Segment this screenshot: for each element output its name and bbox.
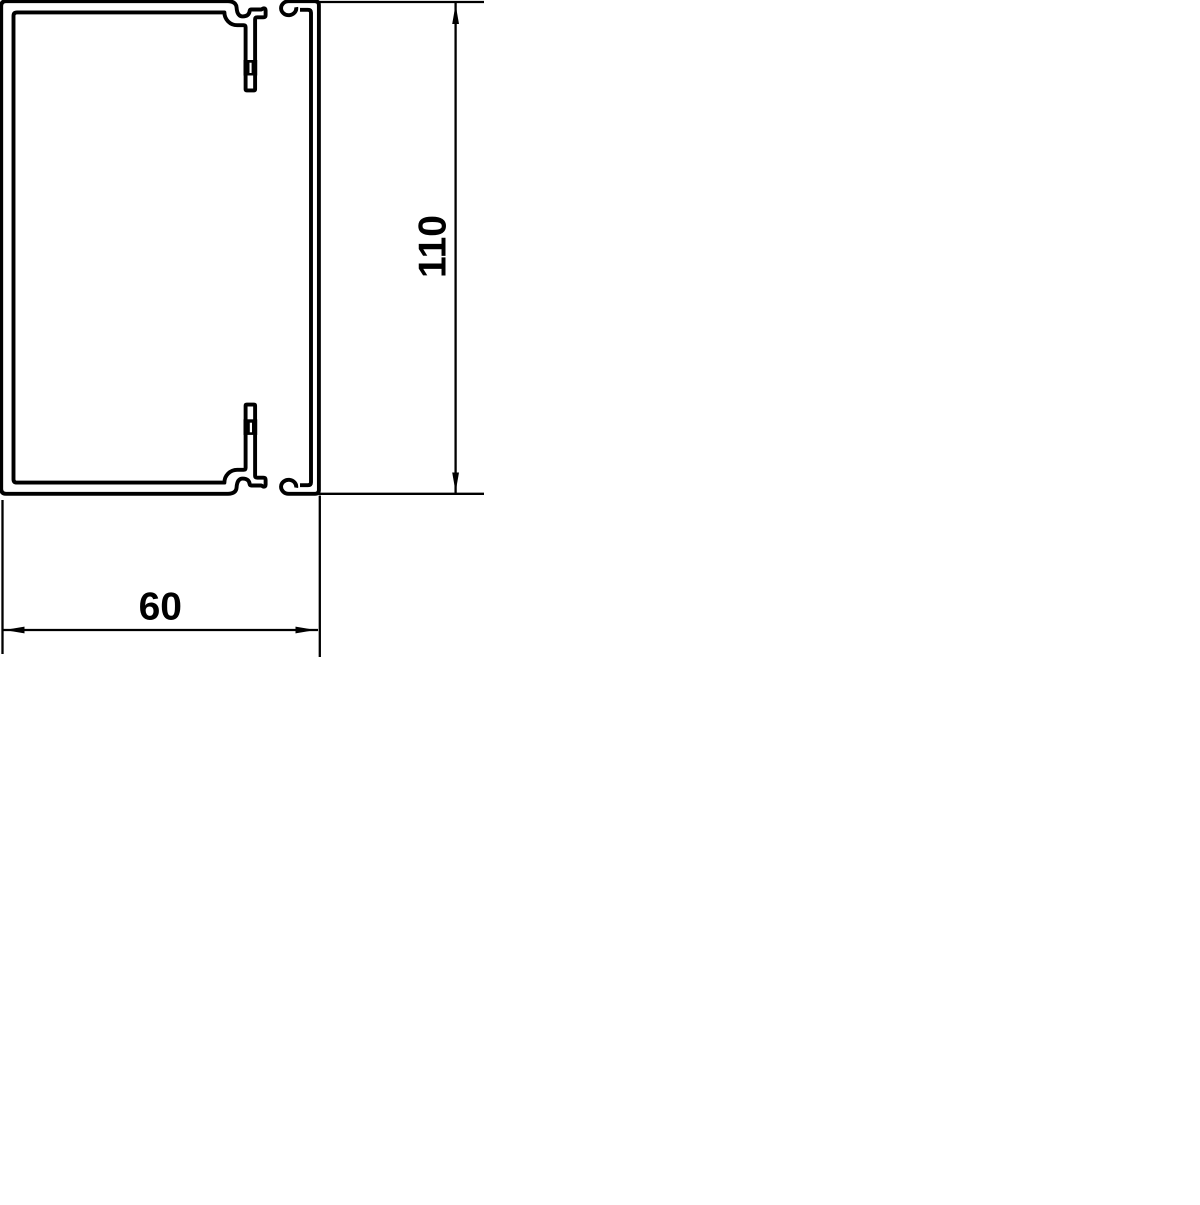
- svg-text:60: 60: [139, 585, 182, 628]
- svg-text:110: 110: [412, 215, 455, 278]
